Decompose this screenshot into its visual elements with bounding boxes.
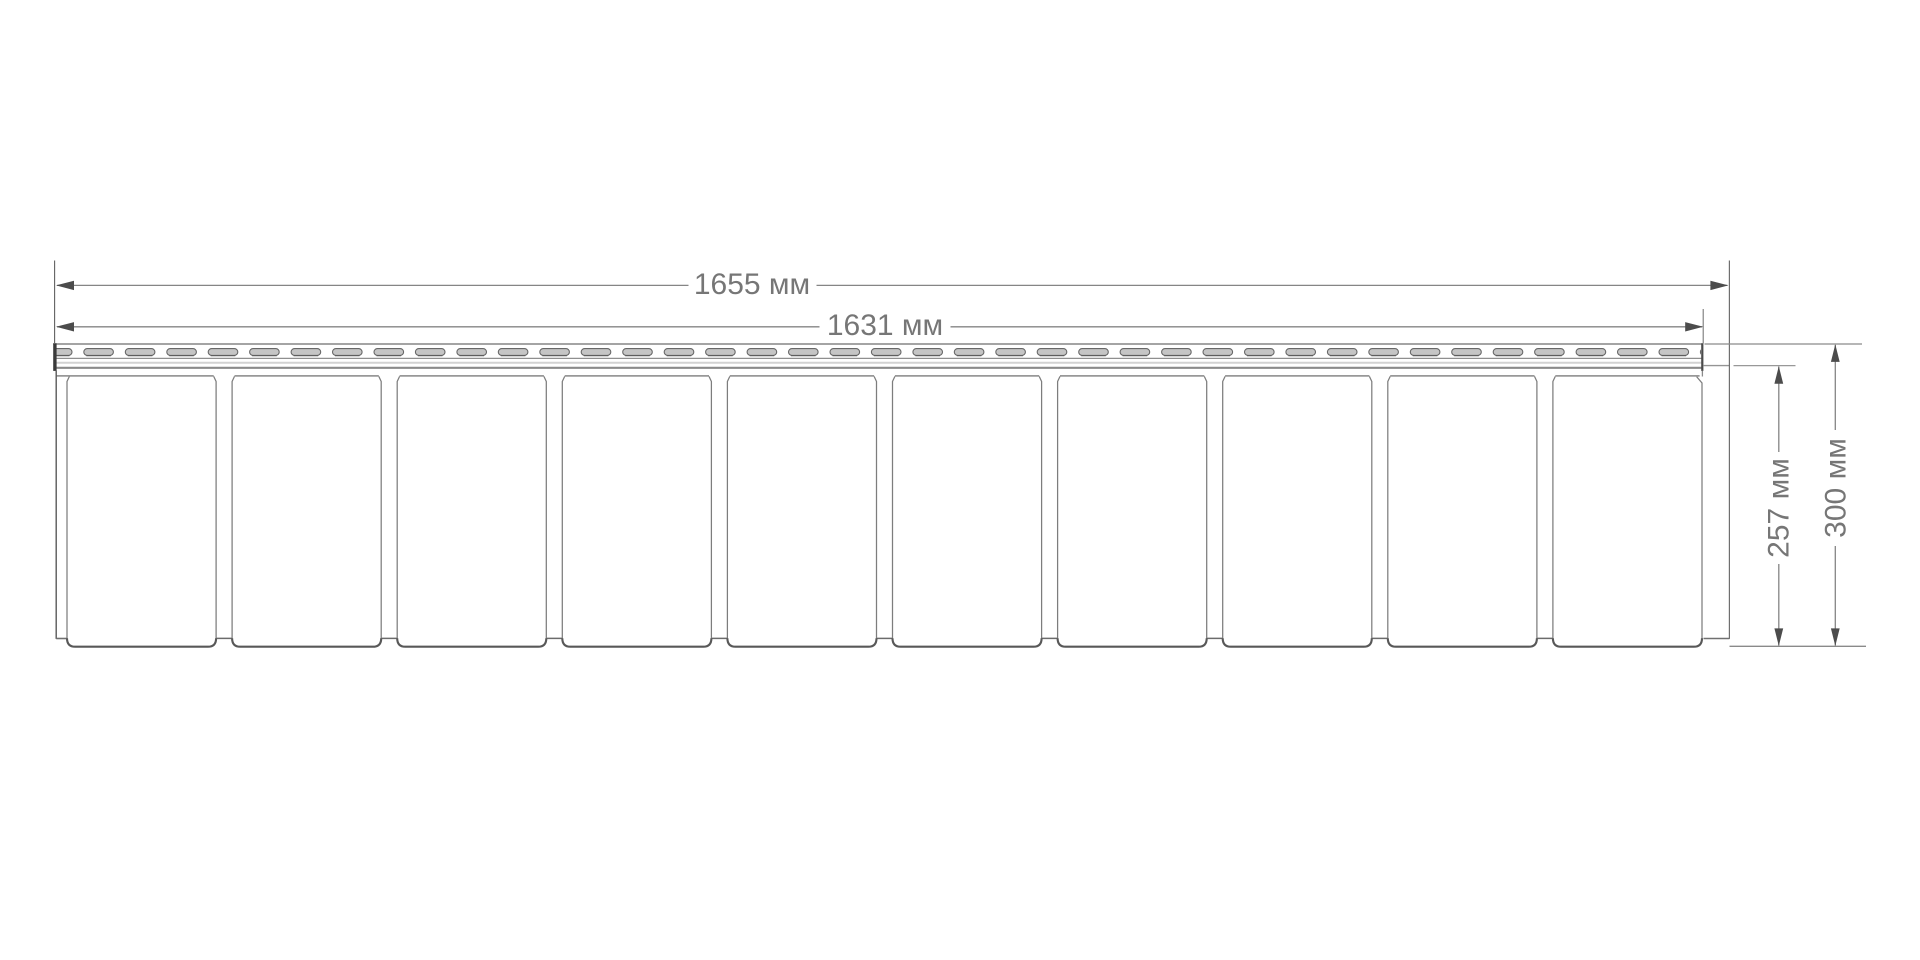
svg-text:1655 мм: 1655 мм (694, 268, 810, 301)
svg-text:257 мм: 257 мм (1763, 458, 1796, 558)
svg-text:1631 мм: 1631 мм (827, 309, 943, 342)
svg-text:300 мм: 300 мм (1820, 438, 1853, 538)
